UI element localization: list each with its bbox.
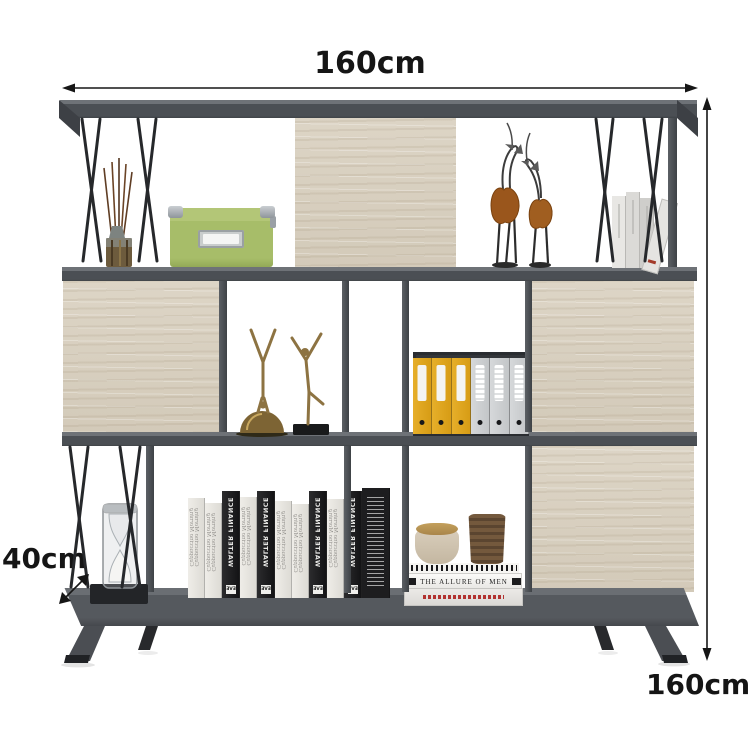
book-spine-dense — [362, 488, 390, 598]
book-spine-cream: Cappuccino MorningCappuccino Morning — [292, 504, 309, 598]
book-spine-white — [626, 192, 640, 268]
side-post-top-right — [668, 118, 677, 267]
metal-corner — [168, 206, 183, 218]
wood-back-panel-middle-right — [532, 281, 694, 432]
book-spine-black: WALTER FINANCEEVE — [257, 491, 275, 598]
divider-post — [525, 446, 532, 592]
stacked-book-patterned — [409, 563, 519, 573]
divider-post — [344, 446, 351, 593]
divider-post — [146, 446, 154, 592]
stacked-book-bottom — [404, 588, 523, 606]
book-spine-cream: Cappuccino MorningCappuccino Morning — [327, 499, 344, 598]
center-books: Cappuccino MorningCappuccino MorningCapp… — [188, 486, 389, 598]
depth-dimension-label: 40cm — [2, 542, 80, 575]
yellow-ring-binder — [413, 358, 432, 434]
bowl-lid — [416, 523, 458, 535]
divider-post — [402, 446, 409, 592]
shelf-leg-back-right — [594, 626, 614, 650]
divider-post — [525, 281, 532, 432]
divider-post — [342, 281, 349, 432]
width-dimension-label: 160cm — [300, 46, 440, 81]
book-spine-black: WALTER FINANCEEVE — [309, 491, 327, 598]
gray-ring-binder — [490, 358, 509, 434]
shelf-leg-front-right — [645, 626, 686, 661]
wood-back-panel-bottom-right — [532, 446, 694, 592]
divider-post — [219, 281, 227, 432]
green-storage-box — [170, 208, 273, 267]
metal-corner — [260, 206, 275, 218]
gray-ring-binder — [471, 358, 490, 434]
book-spine-cream: Cappuccino MorningCappuccino Morning — [240, 497, 257, 598]
shelf-leg-back-left — [138, 626, 158, 650]
height-dimension-label: 160cm — [646, 668, 750, 701]
shelf-middle-board-1 — [62, 267, 697, 281]
book-title: THE ALLURE OF MEN — [420, 578, 508, 586]
gymnast-figurines — [236, 330, 329, 437]
wood-back-panel-middle-left — [63, 281, 219, 432]
book-spine-cream: Cappuccino MorningCappuccino Morning — [275, 501, 292, 598]
ceramic-bowl — [415, 530, 459, 564]
shelf-top-board — [60, 100, 697, 118]
book-spine-black: WALTER FINANCEEVE — [222, 491, 240, 598]
shelf-middle-board-2 — [62, 432, 697, 446]
shelf-leg-front-left — [66, 626, 105, 661]
yellow-ring-binder — [452, 358, 471, 434]
product-dimension-image: Cappuccino MorningCappuccino MorningCapp… — [0, 0, 750, 750]
book-spine-cream: Cappuccino MorningCappuccino Morning — [188, 498, 205, 598]
woven-vase — [466, 514, 508, 564]
label-plate — [198, 230, 244, 248]
book-spine-cream: Cappuccino MorningCappuccino Morning — [205, 503, 222, 598]
divider-post — [402, 281, 409, 432]
spine-ornament — [512, 578, 521, 585]
yellow-ring-binder — [432, 358, 451, 434]
book-spine-cream — [612, 196, 626, 268]
deer-figurines — [491, 123, 552, 268]
binder-tray — [413, 352, 529, 436]
reed-diffuser — [104, 158, 132, 267]
wood-back-panel-top-center — [295, 112, 456, 267]
